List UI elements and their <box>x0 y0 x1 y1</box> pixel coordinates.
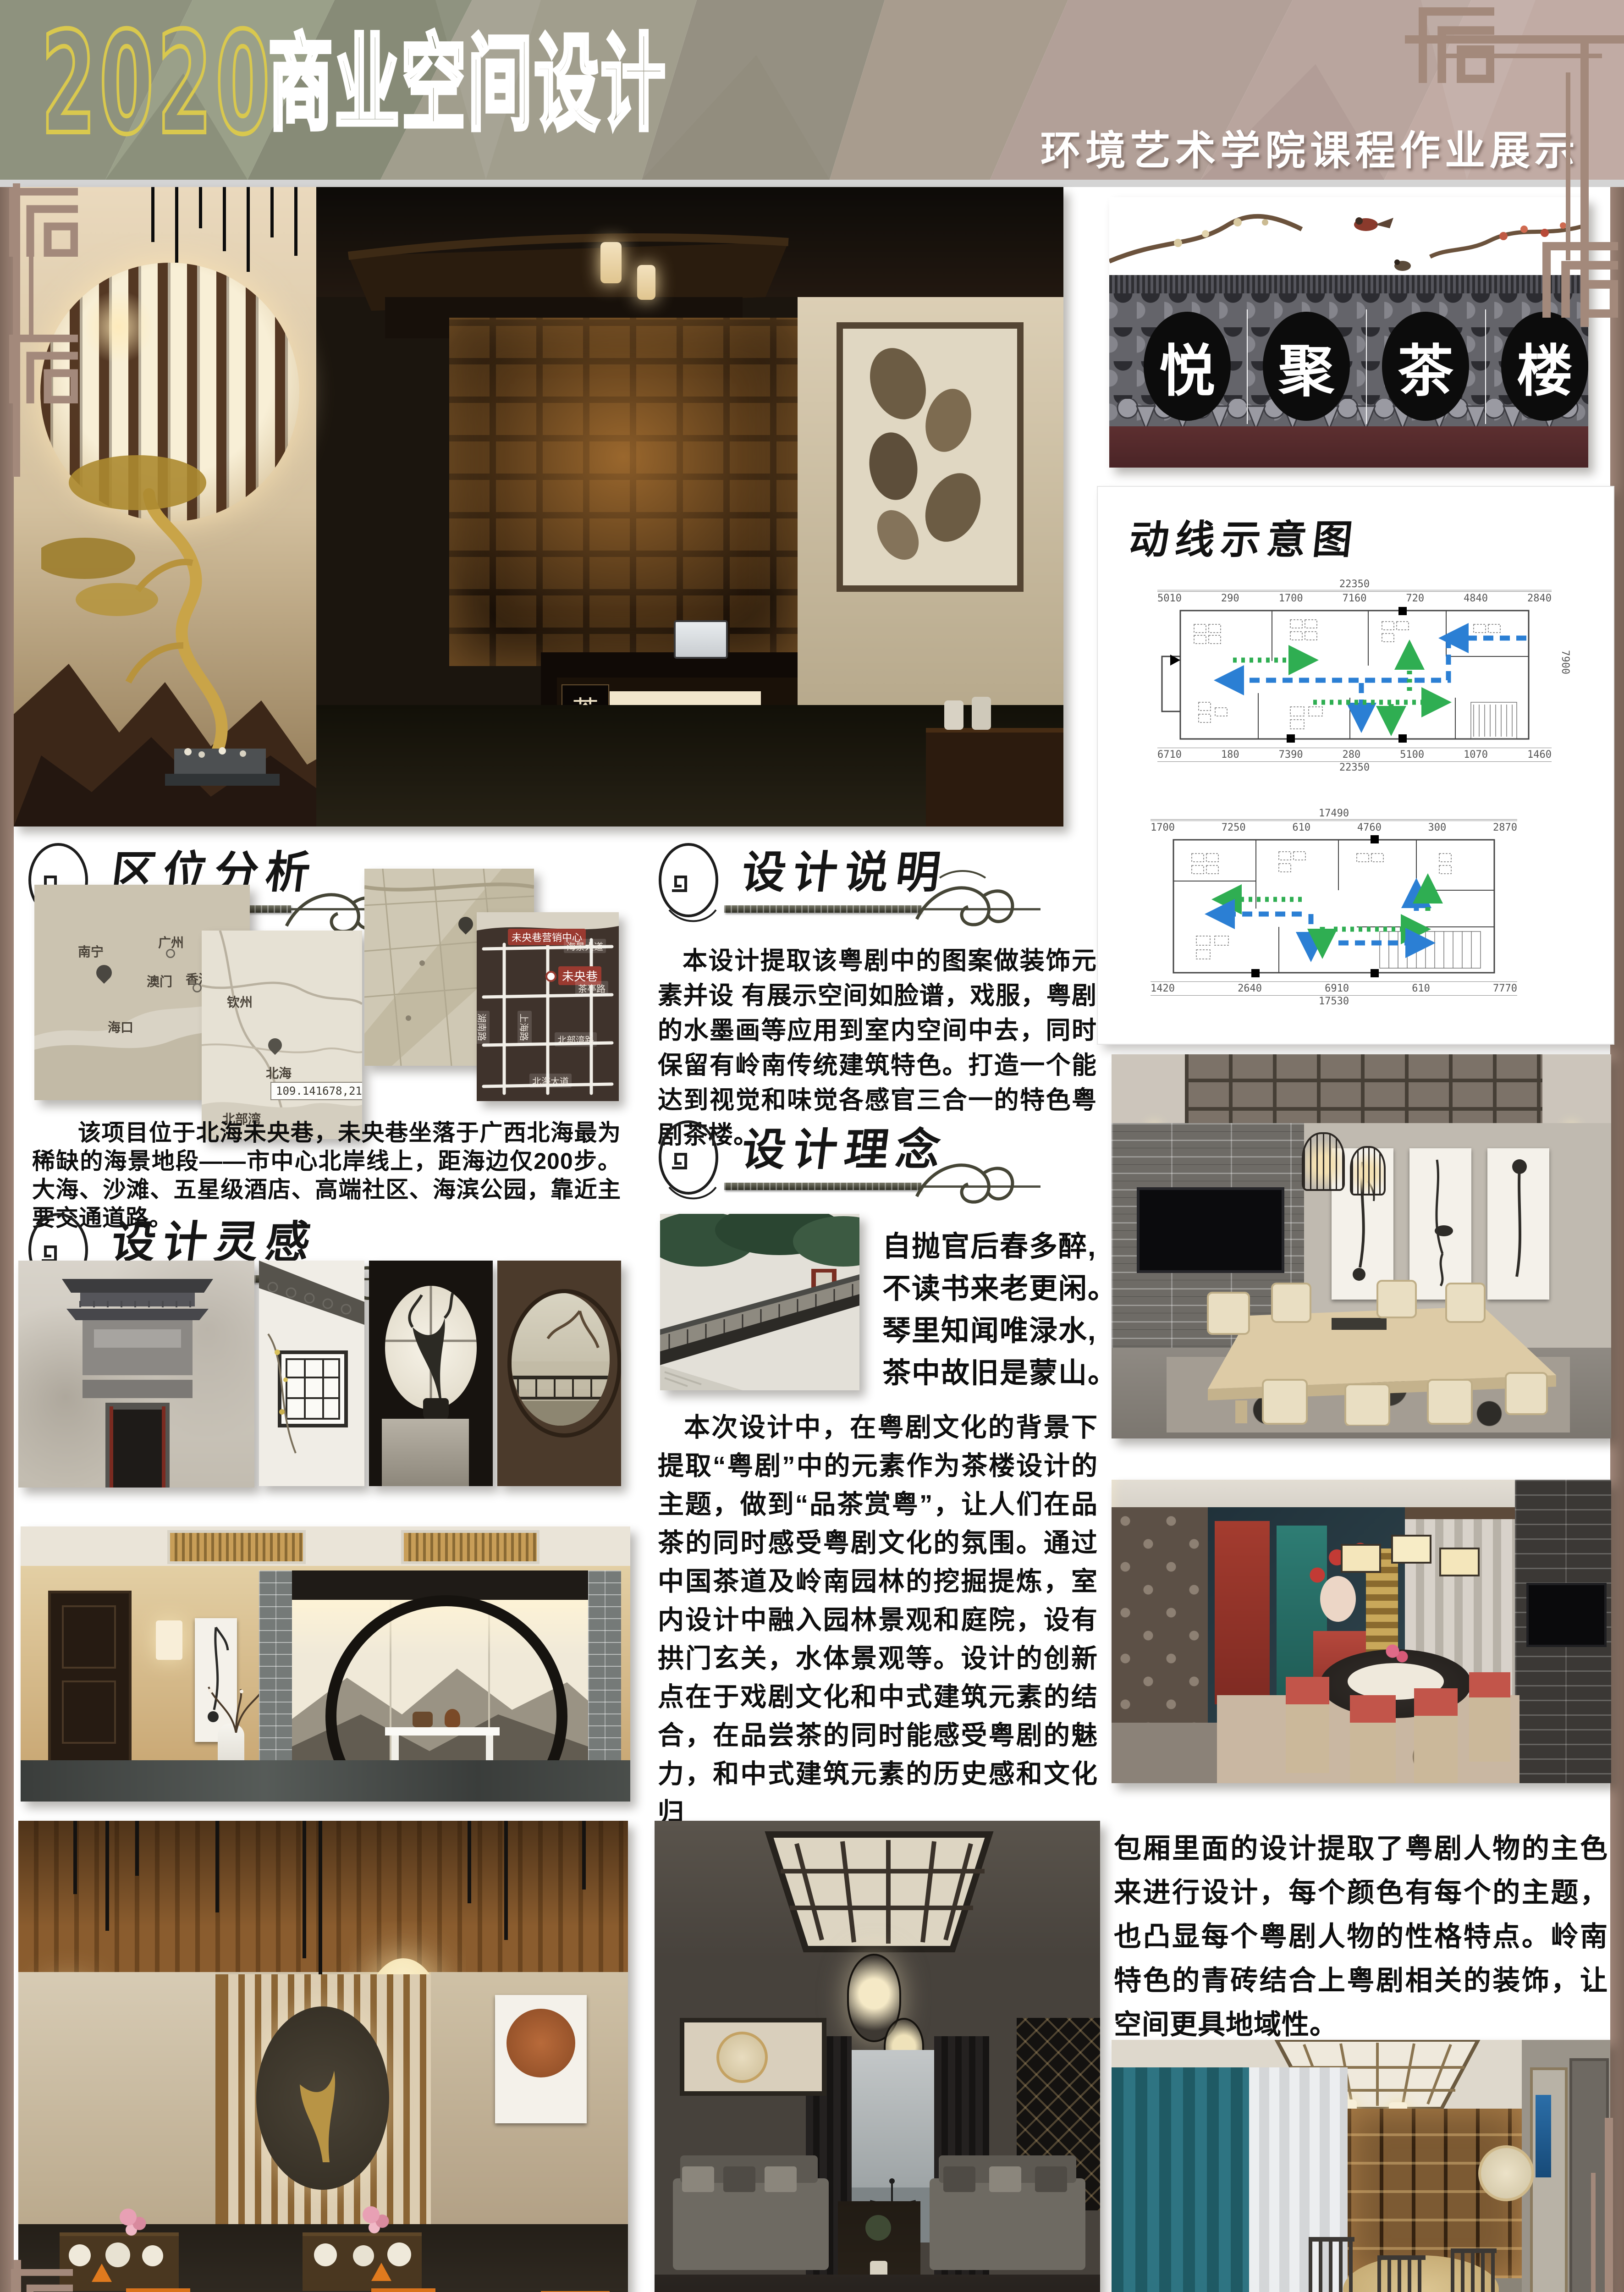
moon-lattice-icon <box>655 1118 724 1206</box>
road-label: 北部湾路 <box>555 1032 597 1047</box>
shelf-pendant-lamp <box>600 242 622 283</box>
window-scene <box>259 1261 364 1486</box>
city-dot <box>193 983 202 992</box>
leaf-artwork <box>837 322 1024 592</box>
dim: 2640 <box>1238 983 1262 994</box>
room-body-text: 包厢里面的设计提取了粤剧人物的主色来进行设计，每个颜色有每个的主题，也凸显每个粤… <box>1114 1827 1608 2047</box>
light-stick <box>319 1821 322 1995</box>
wall-sconce <box>156 1620 182 1660</box>
corner-lattice-bottom-left <box>5 2260 133 2292</box>
plan2-total-bottom: 17530 <box>1151 995 1517 1007</box>
road-label: 北海大道 <box>529 1074 572 1088</box>
logo-char: 楼 <box>1517 326 1573 407</box>
opera-chair <box>1286 1677 1329 1773</box>
marble-floor <box>21 1760 630 1802</box>
beihai-map-image: 钦州 北海 北部湾 109.141678,21.214861 <box>202 931 362 1139</box>
poi-dot <box>419 960 425 966</box>
chair-row <box>46 2288 628 2292</box>
pillow <box>765 2166 797 2192</box>
tea-shelf-wall <box>449 318 798 666</box>
weiyang-lane-map-image: 未央巷营销中心 未央巷 海景大道 茶亭路 北部湾路 北海大道 上海路 湖南路 <box>477 912 619 1101</box>
city-label: 南宁 <box>78 942 104 960</box>
city-dot <box>166 949 175 958</box>
concept-corridor-image <box>660 1214 859 1390</box>
chair-orange-cushion <box>126 2288 190 2292</box>
dim: 6910 <box>1325 983 1349 994</box>
dim: 7390 <box>1279 749 1303 760</box>
ornament-ruler-bar <box>724 905 921 913</box>
poem-line: 不读书来老更闲。 <box>882 1265 1117 1306</box>
flower-centerpiece <box>1380 1640 1412 1668</box>
header-shadow <box>0 180 1624 187</box>
wall-tv <box>1137 1187 1284 1273</box>
birdcage-lamp <box>1350 1146 1386 1196</box>
dim: 6710 <box>1157 749 1182 760</box>
pillow <box>989 2166 1021 2192</box>
road-label: 海景大道 <box>564 939 606 953</box>
roads <box>202 931 362 1139</box>
road-label: 茶亭路 <box>575 981 608 995</box>
spindle-chair <box>1451 2248 1497 2292</box>
lounge-render-image <box>655 1821 1100 2292</box>
bird-icon <box>1354 217 1393 231</box>
pendant-strip <box>270 187 274 237</box>
city-label: 北海 <box>266 1063 292 1082</box>
gold-circle-art <box>716 2032 768 2083</box>
pillow <box>1035 2166 1067 2192</box>
wall-art-long <box>680 2018 826 2096</box>
corner-lattice-bottom-right <box>1522 2118 1624 2292</box>
dim: 4760 <box>1357 822 1382 833</box>
tea-jar <box>445 1709 460 1727</box>
brick-pillar <box>588 1570 621 1786</box>
dim: 1070 <box>1464 749 1488 760</box>
pendant-strip <box>223 187 226 251</box>
plan2-dims-top: 1700725061047603002870 <box>1151 821 1517 833</box>
shelf-pendant-lamp <box>637 265 655 300</box>
dim: 7160 <box>1342 593 1366 604</box>
dim: 2870 <box>1493 822 1517 833</box>
main-body-text: 本次设计中，在粤剧文化的背景下提取“粤剧”中的元素作为茶楼设计的主题，做到“品茶… <box>658 1408 1098 1832</box>
main-title-text: 商业空间设计 <box>268 23 667 145</box>
coords-box: 109.141678,21.214861 <box>270 1082 362 1100</box>
red-banner <box>1215 1521 1270 1704</box>
plan1-dims-top: 50102901700716072048402840 <box>1157 591 1552 604</box>
light-stick <box>504 1821 508 1940</box>
plan2-dims-bottom: 1420264069106107770 <box>1151 981 1517 994</box>
side-wall-left <box>18 1972 215 2229</box>
plate <box>142 2245 163 2266</box>
inspiration-moon-gate-image <box>497 1261 621 1486</box>
left-edge-strip <box>0 187 14 2292</box>
screen-oval <box>256 2006 389 2190</box>
city-label: 广州 <box>158 933 184 951</box>
logo-divider <box>1247 309 1248 424</box>
oval-window <box>385 1286 477 1410</box>
plan1-total-right: 7900 <box>1559 650 1571 674</box>
light-stick <box>215 1821 219 1912</box>
flower-bouquet <box>117 2206 149 2238</box>
pendant-strip <box>175 187 178 263</box>
plan1-dims-bottom: 67101807390280510010701460 <box>1157 748 1552 760</box>
opera-room-render-image <box>1112 1480 1611 1783</box>
city-label: 澳门 <box>147 972 172 990</box>
tea-jars <box>944 700 963 730</box>
lamp-box <box>1439 1548 1480 1576</box>
marker-dot <box>545 971 556 982</box>
poem-line: 自抛官后春多醉, <box>882 1223 1096 1264</box>
tea-side-table <box>926 728 1063 826</box>
moon-lattice-icon <box>655 841 724 928</box>
dim: 300 <box>1428 822 1447 833</box>
brick-pillar <box>259 1570 292 1786</box>
poem-line: 茶中故旧是蒙山。 <box>882 1350 1117 1391</box>
road-label: 湖南路 <box>477 1011 490 1044</box>
city-label: 钦州 <box>227 992 253 1011</box>
dim: 1420 <box>1151 983 1175 994</box>
concept-section-header: 设计理念 <box>655 1114 1096 1215</box>
opera-chair <box>1469 1672 1510 1762</box>
poster-page: 2020 商业空间设计 环境艺术学院课程作业展示 <box>0 0 1624 2292</box>
tearoom-render-image <box>1112 1054 1611 1438</box>
logo-char-disc: 聚 <box>1263 312 1350 421</box>
dim: 4840 <box>1464 593 1488 604</box>
logo-char-disc: 楼 <box>1501 312 1588 421</box>
floor-plan-1: 22350 50102901700716072048402840 <box>1153 579 1561 776</box>
dim: 290 <box>1221 593 1239 604</box>
lamp-box <box>1391 1535 1431 1564</box>
plan1-drawing <box>1153 606 1556 744</box>
description-section-header: 设计说明 <box>655 837 1096 947</box>
dim: 7770 <box>1493 983 1517 994</box>
poi-dot <box>406 1015 411 1021</box>
chair-orange-cushion <box>371 2288 435 2292</box>
opera-chair <box>1350 1695 1396 1783</box>
logo-char: 茶 <box>1398 326 1453 407</box>
gate-rim <box>507 1289 621 1438</box>
birdcage-lamp <box>1302 1132 1345 1191</box>
flower-bouquet <box>360 2204 392 2236</box>
dim: 2840 <box>1527 593 1552 604</box>
food-art-frame <box>495 1995 587 2123</box>
orange-napkin <box>371 2263 391 2281</box>
inspiration-gate-image <box>18 1261 254 1488</box>
pendant-strip <box>199 187 202 228</box>
plan2-drawing <box>1141 835 1526 977</box>
inspiration-lattice-window-image <box>259 1261 364 1486</box>
dim: 1460 <box>1527 749 1552 760</box>
coords-text: 109.141678,21.214861 <box>276 1085 362 1097</box>
dim: 7250 <box>1222 822 1246 833</box>
rect-chandelier <box>1341 1530 1478 1576</box>
dim: 180 <box>1221 749 1239 760</box>
logo-divider <box>1366 309 1367 424</box>
slat-screen <box>215 1974 444 2231</box>
ornament-ruler-bar <box>724 1183 921 1190</box>
flourish-icon <box>912 864 1018 942</box>
long-table <box>1180 1274 1584 1426</box>
damask-wall <box>1112 1507 1208 1723</box>
logo-char-disc: 茶 <box>1382 312 1469 421</box>
plate <box>314 2243 337 2266</box>
light-stick <box>303 1821 306 1958</box>
pendant-light-strips <box>151 187 325 279</box>
logo-char: 悦 <box>1159 326 1215 407</box>
table-plant <box>865 2215 891 2241</box>
pedestal <box>382 1419 469 1486</box>
light-stick <box>135 1821 139 1876</box>
dim: 610 <box>1292 822 1310 833</box>
dim: 1700 <box>1151 822 1175 833</box>
light-stick <box>73 1821 77 1894</box>
spindle-chair <box>1309 2237 1354 2292</box>
opera-chair <box>1414 1688 1458 1783</box>
pendant-strip <box>151 187 154 242</box>
light-stick <box>468 1821 471 1903</box>
spindle-chair <box>1377 2255 1426 2292</box>
logo-char: 聚 <box>1278 326 1334 407</box>
lounge-floor <box>655 2275 1100 2292</box>
pillow <box>682 2166 714 2192</box>
dining-hall-render-image <box>18 1821 628 2292</box>
main-hall-render-image: 茶 <box>14 187 1063 826</box>
maroon-wall <box>1109 426 1588 468</box>
food-photo <box>506 2009 575 2077</box>
wall-tv <box>1526 1583 1607 1647</box>
corner-lattice-top-right <box>1405 4 1624 327</box>
pillow <box>943 2166 975 2192</box>
dim: 5100 <box>1400 749 1424 760</box>
sofa-right <box>930 2178 1085 2270</box>
poem-line: 琴里知闻唯渌水, <box>882 1307 1096 1349</box>
floor-plan-2: 17490 1700725061047603002870 <box>1141 808 1526 1023</box>
dim: 1700 <box>1279 593 1303 604</box>
plan1-total-bottom: 22350 <box>1157 761 1552 773</box>
dim: 610 <box>1412 983 1430 994</box>
city-label: 海口 <box>108 1018 133 1036</box>
circulation-title: 动线示意图 <box>1127 507 1362 565</box>
dim: 5010 <box>1157 593 1182 604</box>
door-panel <box>62 1680 116 1744</box>
pendant-strip <box>294 187 297 256</box>
inner-glow <box>82 290 155 364</box>
lamp-box <box>1341 1544 1381 1573</box>
plan1-total-top: 22350 <box>1157 579 1552 590</box>
leaf-shapes <box>843 329 1004 573</box>
sofa-left <box>673 2178 829 2270</box>
road-label: 上海路 <box>517 1011 532 1044</box>
header-banner: 2020 商业空间设计 环境艺术学院课程作业展示 <box>0 0 1624 180</box>
plant-silhouette <box>385 1286 477 1410</box>
door-panel <box>62 1605 116 1669</box>
logo-char-disc: 悦 <box>1144 312 1231 421</box>
pillow <box>723 2166 755 2192</box>
dim: 720 <box>1406 593 1424 604</box>
corner-lattice-top-left <box>3 183 83 477</box>
skylight <box>737 1830 1021 1958</box>
flourish-icon <box>912 1146 1018 1219</box>
gate-tower <box>62 1265 213 1488</box>
inspiration-oval-window-image <box>369 1261 493 1486</box>
light-stick <box>582 1821 586 1890</box>
dim: 280 <box>1342 749 1360 760</box>
corridor-scene <box>660 1214 859 1390</box>
ceiling-slat-inset <box>401 1530 539 1564</box>
teal-curtain <box>1112 2067 1249 2292</box>
teapot <box>413 1712 433 1727</box>
circulation-panel: 动线示意图 22350 50102901700716072048402840 <box>1098 487 1613 1044</box>
imac-monitor <box>674 620 728 659</box>
dining-table <box>303 2232 422 2291</box>
foyer-render-image <box>21 1526 630 1802</box>
light-stick <box>105 1821 109 1931</box>
tea-jars <box>972 697 991 730</box>
dark-door <box>48 1591 132 1766</box>
pendant-strip <box>247 187 250 272</box>
plan2-total-top: 17490 <box>1151 808 1517 820</box>
ceiling-slat-inset <box>167 1530 306 1564</box>
main-title: 商业空间设计 <box>0 0 1100 180</box>
table-top <box>385 1727 500 1736</box>
